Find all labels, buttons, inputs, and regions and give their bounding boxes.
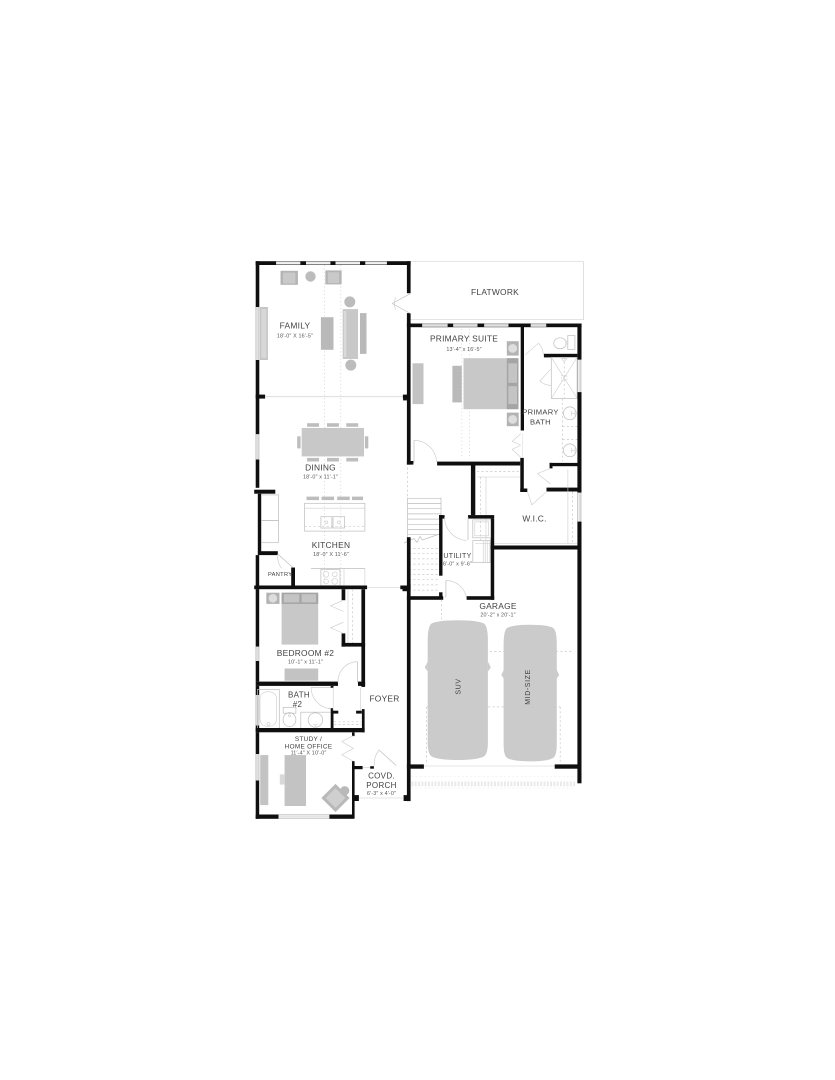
svg-text:SUV: SUV: [456, 678, 463, 694]
svg-text:DINING: DINING: [305, 463, 336, 473]
svg-text:HOME OFFICE: HOME OFFICE: [285, 743, 333, 750]
svg-text:KITCHEN: KITCHEN: [312, 540, 351, 550]
svg-text:W.I.C.: W.I.C.: [522, 514, 546, 524]
svg-text:GARAGE: GARAGE: [479, 601, 516, 611]
svg-text:PRIMARY SUITE: PRIMARY SUITE: [430, 334, 498, 344]
svg-text:STUDY /: STUDY /: [295, 736, 322, 743]
svg-text:COVD.: COVD.: [368, 771, 395, 780]
svg-text:10′-1″ x 11′-1″: 10′-1″ x 11′-1″: [288, 660, 323, 666]
svg-text:PORCH: PORCH: [366, 781, 396, 790]
svg-text:FLATWORK: FLATWORK: [471, 287, 519, 297]
svg-text:#2: #2: [293, 700, 303, 709]
svg-text:11′-4″ X 10′-0″: 11′-4″ X 10′-0″: [291, 750, 327, 756]
svg-text:FOYER: FOYER: [369, 694, 399, 704]
svg-text:13′-4″ x 16′-5″: 13′-4″ x 16′-5″: [446, 347, 481, 353]
svg-text:MID-SIZE: MID-SIZE: [525, 669, 532, 705]
svg-text:UTILITY: UTILITY: [443, 553, 471, 560]
svg-text:BEDROOM #2: BEDROOM #2: [277, 648, 335, 658]
svg-text:18′-0″ X 16′-5″: 18′-0″ X 16′-5″: [277, 334, 313, 340]
svg-text:BATH: BATH: [530, 418, 551, 427]
svg-text:18′-0″ X 11′-6″: 18′-0″ X 11′-6″: [313, 552, 349, 558]
svg-text:20′-2″ x 20′-1″: 20′-2″ x 20′-1″: [480, 613, 515, 619]
svg-text:PANTRY: PANTRY: [268, 572, 292, 578]
svg-text:18′-0″ x 11′-1″: 18′-0″ x 11′-1″: [303, 475, 338, 481]
svg-text:PRIMARY: PRIMARY: [522, 408, 559, 417]
svg-text:6′-0″ x 9′-6″: 6′-0″ x 9′-6″: [443, 562, 472, 568]
svg-text:FAMILY: FAMILY: [280, 321, 311, 331]
svg-text:BATH: BATH: [288, 691, 310, 700]
svg-text:6′-3″ x 4′-0″: 6′-3″ x 4′-0″: [367, 791, 396, 797]
